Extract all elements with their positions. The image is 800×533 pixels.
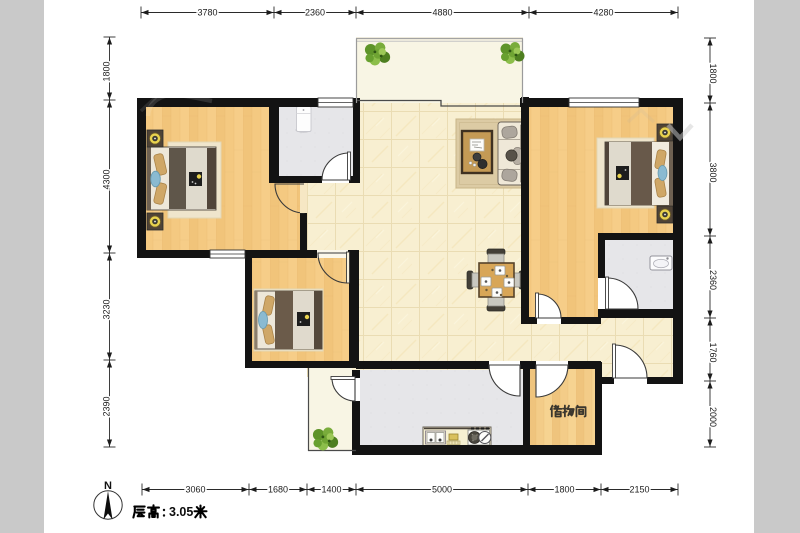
svg-text:N: N [104, 480, 112, 492]
svg-text:4280: 4280 [593, 8, 613, 18]
svg-text:1400: 1400 [321, 485, 341, 495]
svg-text:4300: 4300 [102, 169, 112, 189]
svg-text:3230: 3230 [102, 299, 112, 319]
svg-text:2390: 2390 [102, 396, 112, 416]
svg-text:2360: 2360 [708, 270, 718, 290]
svg-text:3780: 3780 [197, 8, 217, 18]
svg-text:1800: 1800 [102, 61, 112, 81]
svg-text:1800: 1800 [708, 63, 718, 83]
svg-text:2000: 2000 [708, 407, 718, 427]
svg-text:1800: 1800 [554, 485, 574, 495]
svg-text:1680: 1680 [268, 485, 288, 495]
svg-text:5000: 5000 [432, 485, 452, 495]
svg-text:2360: 2360 [305, 8, 325, 18]
svg-text:3060: 3060 [185, 485, 205, 495]
svg-text:4880: 4880 [432, 8, 452, 18]
svg-text:3.05: 3.05 [169, 505, 193, 519]
svg-text:1760: 1760 [708, 342, 718, 362]
svg-text:2150: 2150 [629, 485, 649, 495]
svg-text:3800: 3800 [708, 162, 718, 182]
